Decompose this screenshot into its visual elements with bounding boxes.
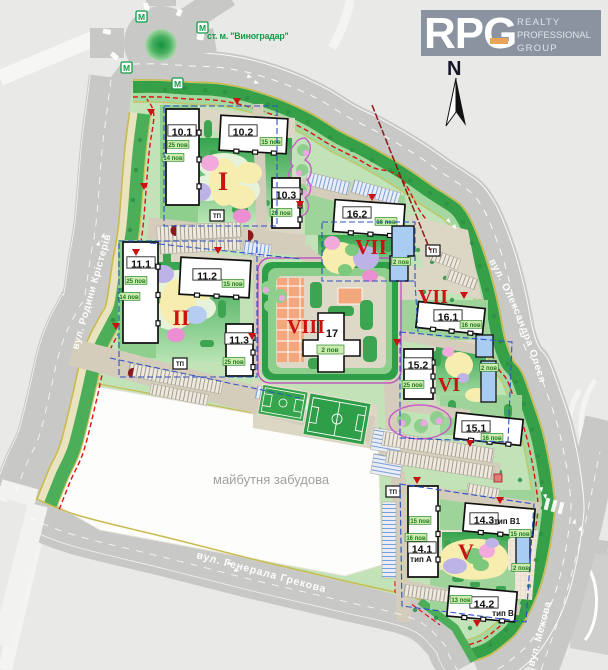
svg-text:PROFESSIONAL: PROFESSIONAL (517, 30, 591, 41)
svg-text:15 пов: 15 пов (410, 519, 430, 525)
svg-text:11.3: 11.3 (229, 334, 249, 346)
svg-text:VII: VII (418, 286, 448, 308)
svg-text:2 пов: 2 пов (321, 347, 338, 354)
svg-text:REALTY: REALTY (517, 17, 560, 28)
svg-text:VII: VII (355, 235, 387, 259)
svg-text:II: II (172, 305, 189, 330)
svg-text:М: М (138, 12, 145, 22)
svg-text:15 пов: 15 пов (223, 282, 243, 288)
svg-text:15.1: 15.1 (466, 422, 487, 434)
svg-text:майбутня забудова: майбутня забудова (213, 472, 330, 487)
svg-text:N: N (447, 58, 461, 80)
svg-text:ТП: ТП (213, 214, 221, 220)
svg-text:10.3: 10.3 (276, 189, 297, 201)
svg-text:GROUP: GROUP (517, 43, 558, 54)
svg-text:2 пов: 2 пов (393, 260, 409, 266)
svg-text:тип А: тип А (410, 555, 432, 564)
svg-text:16.2: 16.2 (347, 208, 368, 220)
svg-text:14.3: 14.3 (474, 514, 495, 526)
svg-text:16 пов: 16 пов (376, 220, 396, 226)
svg-text:ст. м. "Виноградар": ст. м. "Виноградар" (207, 31, 289, 41)
svg-text:14 пов: 14 пов (163, 156, 183, 162)
svg-text:25 пов: 25 пов (168, 143, 188, 149)
svg-text:М: М (123, 63, 130, 73)
svg-text:16 пов: 16 пов (406, 536, 426, 542)
svg-text:16.1: 16.1 (438, 311, 459, 323)
svg-text:тип В: тип В (492, 609, 514, 618)
svg-text:13 пов: 13 пов (451, 598, 471, 604)
svg-text:15 пов: 15 пов (261, 140, 281, 146)
svg-text:М: М (174, 79, 181, 89)
svg-text:17: 17 (326, 328, 338, 340)
svg-text:2 пов: 2 пов (513, 566, 529, 572)
svg-text:I: I (218, 167, 228, 196)
svg-text:VIII: VIII (287, 316, 325, 338)
svg-text:11.1: 11.1 (131, 258, 151, 270)
svg-text:М: М (199, 23, 206, 33)
svg-text:V: V (458, 539, 474, 564)
svg-text:ТП: ТП (389, 490, 397, 496)
svg-text:VI: VI (438, 374, 460, 396)
svg-text:14 пов: 14 пов (119, 295, 139, 301)
svg-text:16 пов: 16 пов (461, 323, 481, 329)
svg-text:ТП: ТП (176, 362, 184, 368)
svg-text:11.2: 11.2 (197, 270, 217, 282)
svg-text:тип В1: тип В1 (494, 517, 521, 526)
svg-text:25 пов: 25 пов (224, 360, 244, 366)
svg-text:2 пов: 2 пов (481, 366, 497, 372)
svg-text:14.1: 14.1 (412, 543, 433, 555)
svg-text:10.2: 10.2 (233, 126, 254, 138)
svg-text:15 пов: 15 пов (510, 532, 530, 538)
svg-text:15.2: 15.2 (408, 359, 429, 371)
svg-text:26 пов: 26 пов (271, 211, 291, 217)
svg-text:25 пов: 25 пов (403, 383, 423, 389)
svg-text:10.1: 10.1 (172, 126, 193, 138)
svg-text:RPG: RPG (424, 9, 516, 58)
svg-text:25 пов: 25 пов (126, 279, 146, 285)
